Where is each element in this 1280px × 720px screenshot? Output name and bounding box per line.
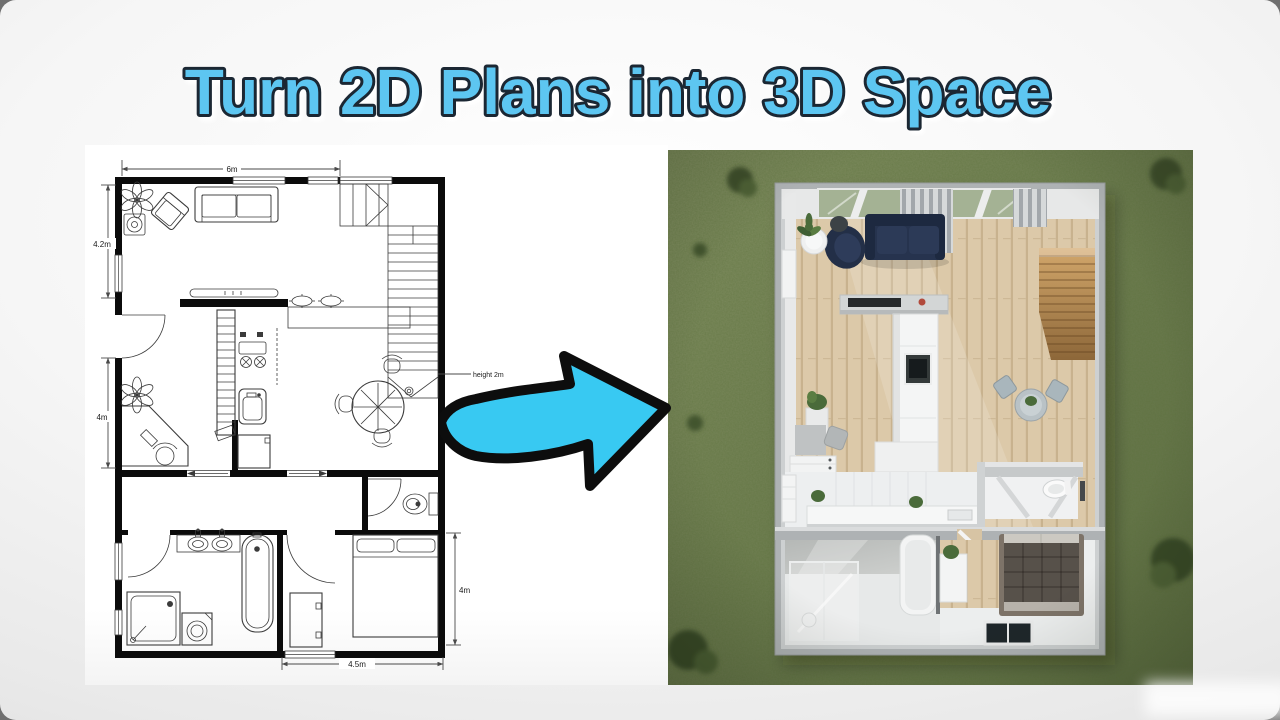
armchair-symbol [150, 191, 189, 230]
dim-bottom-width: 4.5m [348, 660, 366, 669]
background-glow [1145, 682, 1280, 716]
wc-symbols [368, 479, 438, 516]
page-title: Turn 2D Plans into 3D Space [185, 56, 1052, 128]
plant-symbol [119, 182, 155, 218]
bathroom-symbols [127, 529, 273, 646]
plant-symbol-2 [119, 377, 155, 413]
render-3d-scene [668, 150, 1193, 685]
dim-left-lower: 4m [96, 413, 107, 422]
bedroom-symbols [287, 535, 438, 647]
transform-arrow-icon [438, 342, 680, 498]
title-banner: Turn 2D Plans into 3D Space [0, 30, 1280, 150]
kitchen-symbols [190, 289, 410, 468]
staircase-symbol [340, 184, 438, 398]
window-symbols [115, 177, 392, 658]
dim-top-width: 6m [226, 165, 237, 174]
thumbnail-canvas: Turn 2D Plans into 3D Space [0, 0, 1280, 720]
walls [115, 177, 445, 658]
dim-left-upper: 4.2m [93, 240, 111, 249]
dining-table-symbol [335, 355, 404, 447]
sofa-symbol [195, 187, 278, 222]
dim-right-lower: 4m [459, 586, 470, 595]
door-left-entry [122, 315, 165, 358]
render-3d-panel [668, 150, 1193, 685]
speaker-symbol [124, 214, 145, 235]
photo-vignette [668, 150, 1193, 685]
desk-symbol [122, 406, 188, 466]
